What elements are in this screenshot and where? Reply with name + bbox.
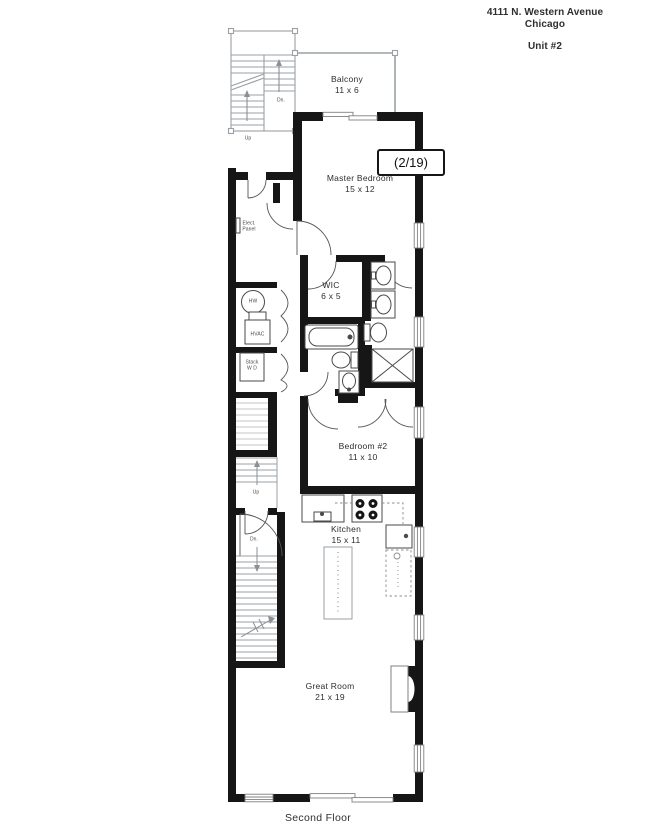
- master-window: [414, 223, 424, 248]
- hall-door: [267, 203, 293, 229]
- exterior-up-label: Up: [245, 136, 252, 142]
- hall-sink: [339, 371, 359, 393]
- balcony-label: Balcony11 x 6: [331, 74, 363, 96]
- utility-bifold-lower: [281, 354, 288, 392]
- utility-bifold-upper: [281, 290, 288, 342]
- hall-bath-fixtures: [305, 325, 359, 393]
- kitchen-window: [414, 527, 424, 557]
- great-room-window-1: [414, 615, 424, 640]
- interior-dn-label: Dn.: [250, 537, 258, 543]
- floor-plan-page: 4111 N. Western Avenue Chicago Unit #2: [0, 0, 650, 831]
- hall-toilet: [332, 352, 358, 368]
- master-toilet: [364, 323, 387, 342]
- bathtub: [305, 325, 358, 349]
- bedroom2-double-door-right: [385, 399, 413, 427]
- bath-window: [414, 317, 424, 347]
- electrical-panel: [236, 218, 240, 233]
- hw-label: HW: [249, 299, 258, 305]
- vanity-sink-2: [371, 291, 395, 318]
- bedroom2-window: [414, 407, 424, 438]
- exterior-stairs: [229, 29, 298, 134]
- vanity-sink-1: [371, 262, 395, 289]
- bedroom2-label: Bedroom #211 x 10: [339, 441, 388, 463]
- refrigerator: [386, 525, 412, 548]
- bottom-slider: [310, 794, 393, 802]
- wic-label: WIC6 x 5: [321, 280, 341, 302]
- bedroom2-door: [308, 399, 338, 429]
- bottom-window: [245, 794, 273, 802]
- pantry-mark: [394, 553, 400, 559]
- great-room-window-2: [414, 745, 424, 772]
- shower: [372, 349, 413, 382]
- stair-hall-door: [240, 514, 282, 556]
- stove: [352, 495, 382, 522]
- floor-plan-drawing: [0, 0, 650, 831]
- upper-cabinet-dashed-right: [382, 503, 403, 524]
- bedroom2-double-door-left: [358, 399, 386, 427]
- kitchen-fixtures: [302, 495, 412, 619]
- floor-title: Second Floor: [285, 812, 351, 824]
- master-bedroom-label: Master Bedroom15 x 12: [327, 173, 393, 195]
- kitchen-label: Kitchen15 x 11: [331, 524, 361, 546]
- kitchen-island: [324, 547, 352, 619]
- stack-wd-label: StackW D: [245, 361, 258, 372]
- elect-panel-label: Elect.Panel: [242, 222, 255, 233]
- entry-door: [248, 180, 266, 198]
- exterior-dn-label: Dn.: [277, 98, 285, 104]
- master-door: [297, 221, 331, 255]
- hvac-label: HVAC: [251, 332, 265, 338]
- hvac-unit: [245, 312, 270, 344]
- interior-up-label: Up: [253, 490, 260, 496]
- page-indicator-badge: (2/19): [377, 149, 445, 176]
- balcony-slider: [323, 112, 377, 120]
- great-room-label: Great Room21 x 19: [306, 681, 355, 703]
- hall-bath-door: [304, 372, 328, 396]
- fireplace: [391, 666, 423, 712]
